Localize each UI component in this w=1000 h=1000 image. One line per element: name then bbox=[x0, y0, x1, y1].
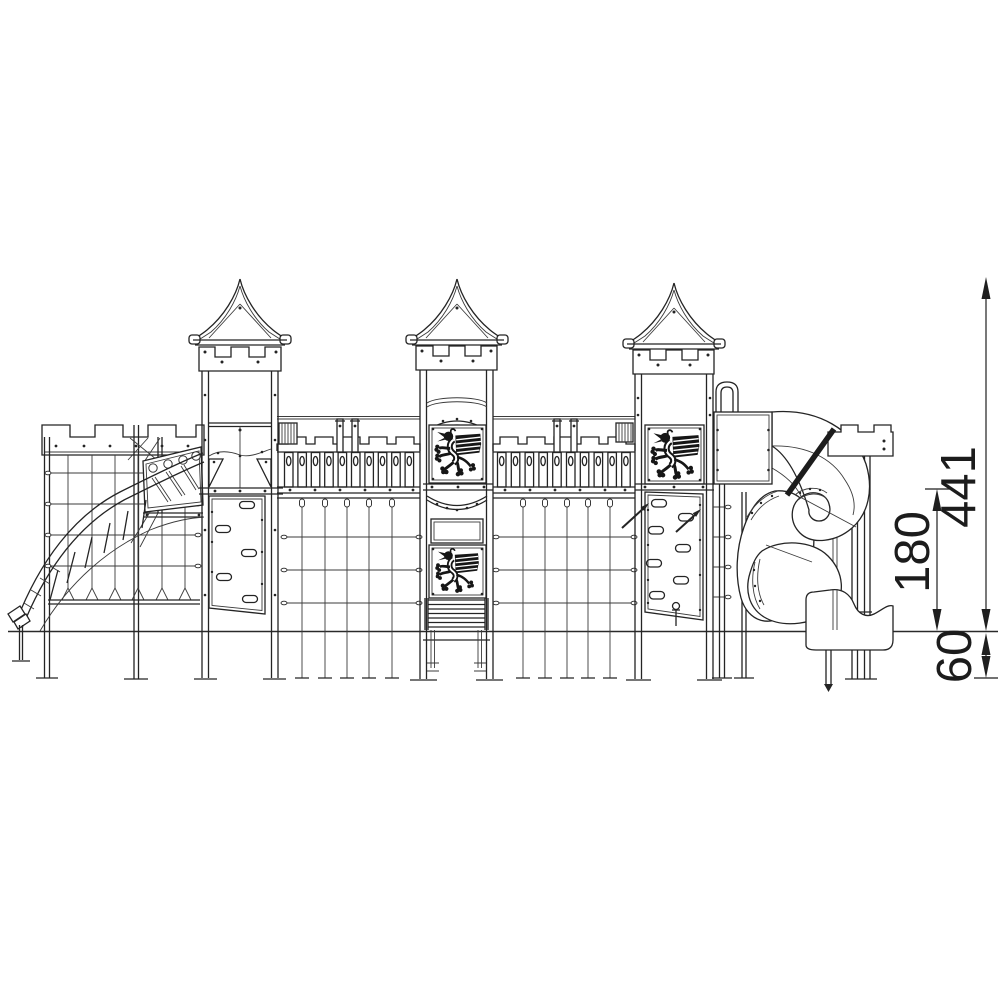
climbing-panel bbox=[209, 496, 265, 614]
tower-left bbox=[189, 279, 291, 679]
climbing-panel bbox=[645, 492, 703, 620]
bridge-right bbox=[493, 417, 635, 499]
griffin-panel-upper bbox=[429, 425, 486, 483]
playground-technical-drawing-page: 441 180 60 bbox=[0, 0, 1000, 1000]
dimension-annotations: 441 180 60 bbox=[886, 277, 998, 683]
bridge-left bbox=[277, 417, 420, 499]
dimension-platform-height: 180 bbox=[886, 489, 950, 631]
tower-middle bbox=[406, 279, 508, 680]
parapet bbox=[416, 346, 497, 370]
dimension-total-height: 441 bbox=[932, 277, 991, 631]
balustrade bbox=[285, 453, 414, 488]
dimension-label-60: 60 bbox=[928, 629, 982, 684]
spiral-tube-slide bbox=[712, 382, 893, 692]
grille-panel bbox=[279, 423, 297, 444]
dimension-label-441: 441 bbox=[932, 446, 986, 528]
dimension-label-180: 180 bbox=[886, 511, 940, 593]
net-wall-right bbox=[493, 499, 637, 678]
griffin-panel-lower bbox=[429, 545, 486, 598]
gateway-posts bbox=[552, 419, 579, 452]
tower-right bbox=[622, 283, 725, 680]
griffin-panel bbox=[645, 425, 704, 484]
castle-playground-elevation: 441 180 60 bbox=[0, 0, 1000, 1000]
parapet bbox=[633, 350, 714, 374]
base-steps bbox=[425, 598, 488, 630]
parapet bbox=[199, 347, 281, 371]
gateway-posts bbox=[335, 419, 360, 452]
crenellated-beam bbox=[42, 425, 204, 455]
slide-exit bbox=[806, 590, 893, 692]
balustrade bbox=[498, 453, 631, 488]
grille-panel bbox=[616, 423, 633, 442]
net-wall-left bbox=[281, 499, 422, 678]
dimension-foundation-depth: 60 bbox=[928, 629, 998, 684]
